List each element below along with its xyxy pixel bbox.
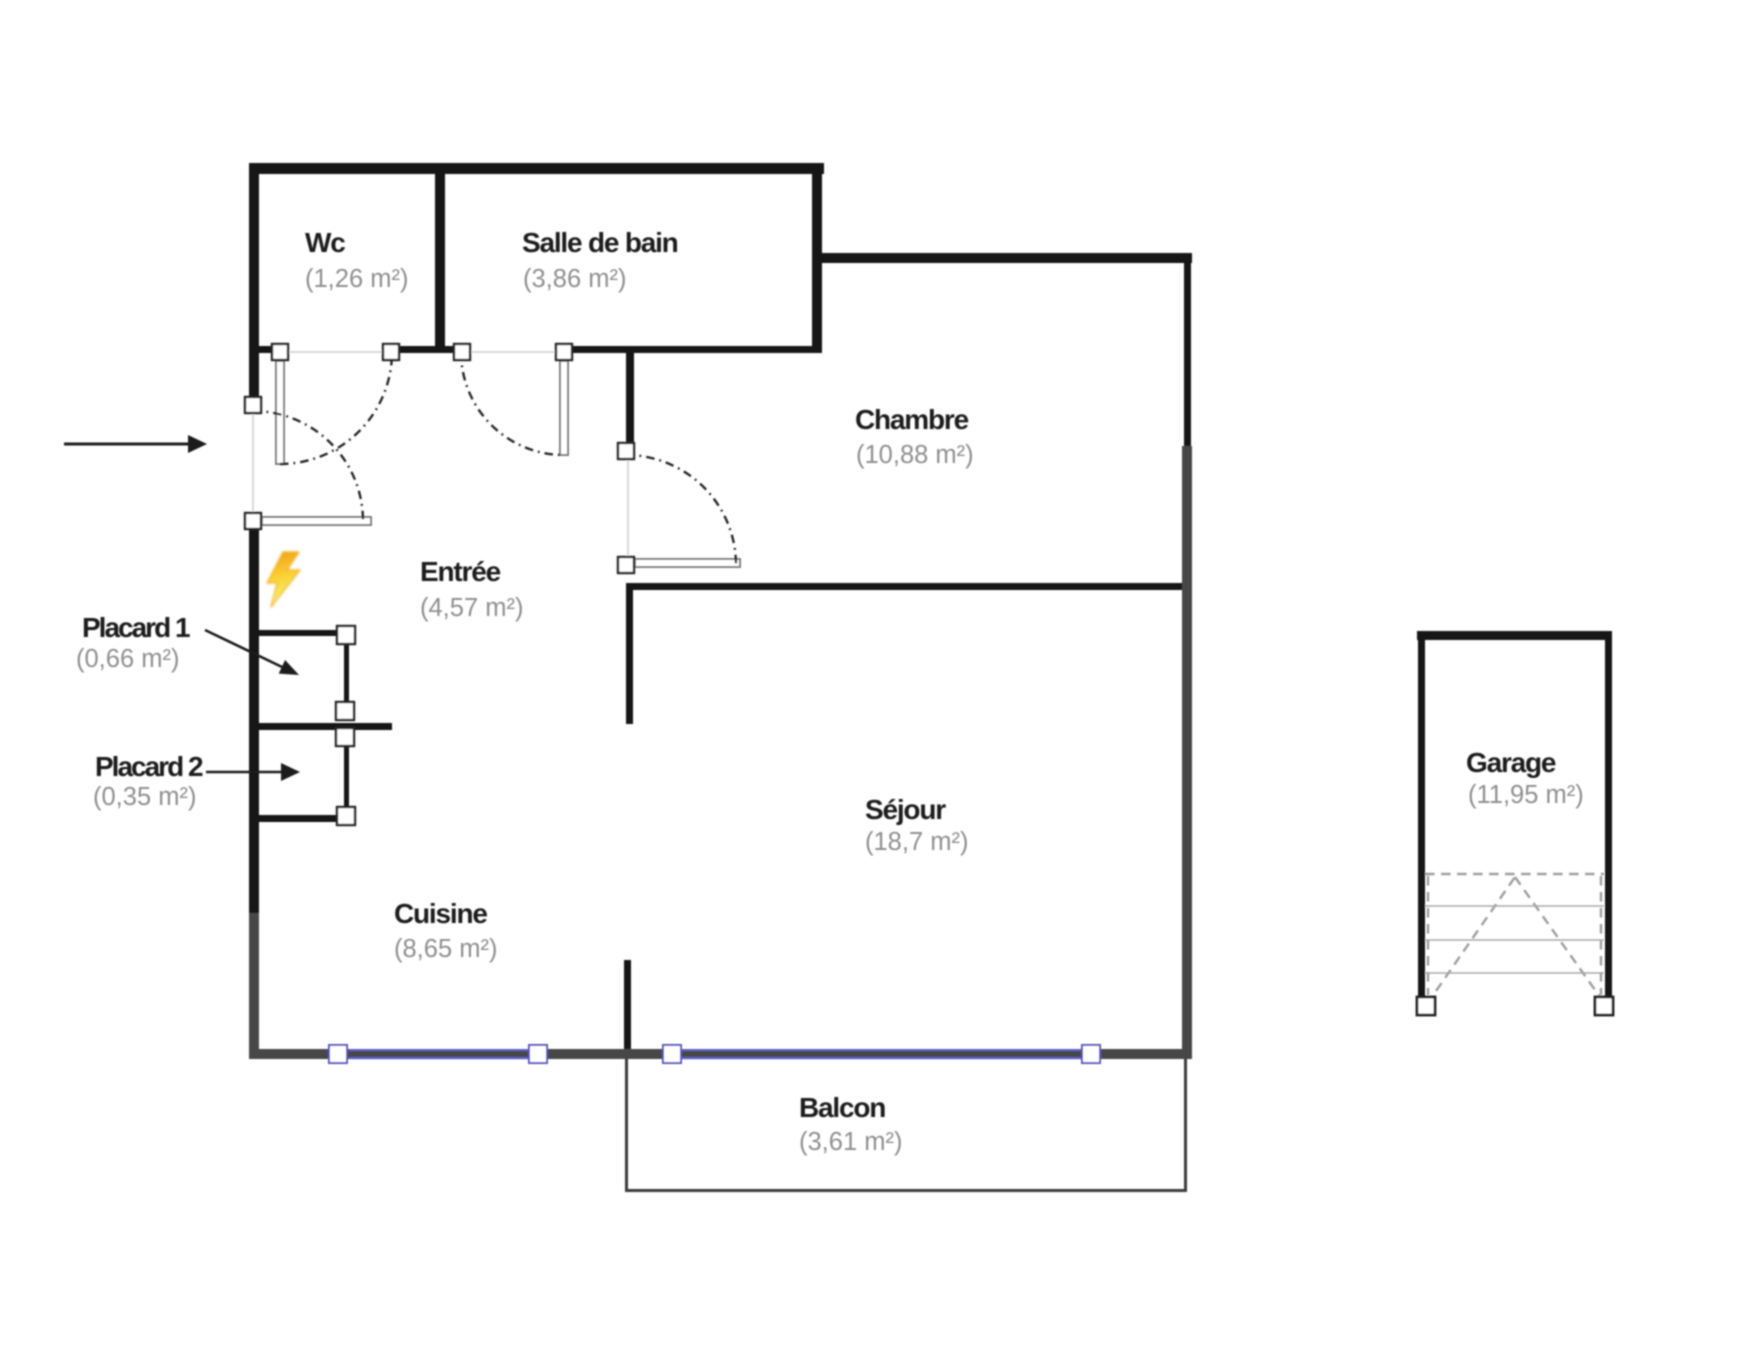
- svg-text:(8,65 m²): (8,65 m²): [394, 935, 497, 963]
- svg-text:(3,61 m²): (3,61 m²): [799, 1128, 902, 1156]
- svg-text:Séjour: Séjour: [865, 794, 946, 825]
- svg-text:(18,7 m²): (18,7 m²): [865, 828, 968, 856]
- svg-text:Placard 1: Placard 1: [82, 612, 190, 643]
- svg-text:Placard 2: Placard 2: [95, 751, 203, 782]
- svg-text:(3,86 m²): (3,86 m²): [523, 265, 626, 293]
- svg-text:Salle de bain: Salle de bain: [522, 227, 678, 258]
- svg-text:Chambre: Chambre: [855, 404, 969, 435]
- svg-text:Cuisine: Cuisine: [394, 898, 487, 929]
- svg-text:Wc: Wc: [305, 227, 345, 258]
- svg-text:(10,88 m²): (10,88 m²): [856, 441, 974, 469]
- svg-text:(0,66 m²): (0,66 m²): [76, 645, 179, 673]
- svg-text:(0,35 m²): (0,35 m²): [93, 783, 196, 811]
- svg-text:Garage: Garage: [1466, 747, 1556, 778]
- svg-text:Entrée: Entrée: [420, 556, 501, 587]
- svg-text:(1,26 m²): (1,26 m²): [305, 265, 408, 293]
- svg-text:(11,95 m²): (11,95 m²): [1468, 781, 1584, 809]
- svg-text:Balcon: Balcon: [799, 1092, 885, 1123]
- svg-text:(4,57 m²): (4,57 m²): [420, 594, 523, 622]
